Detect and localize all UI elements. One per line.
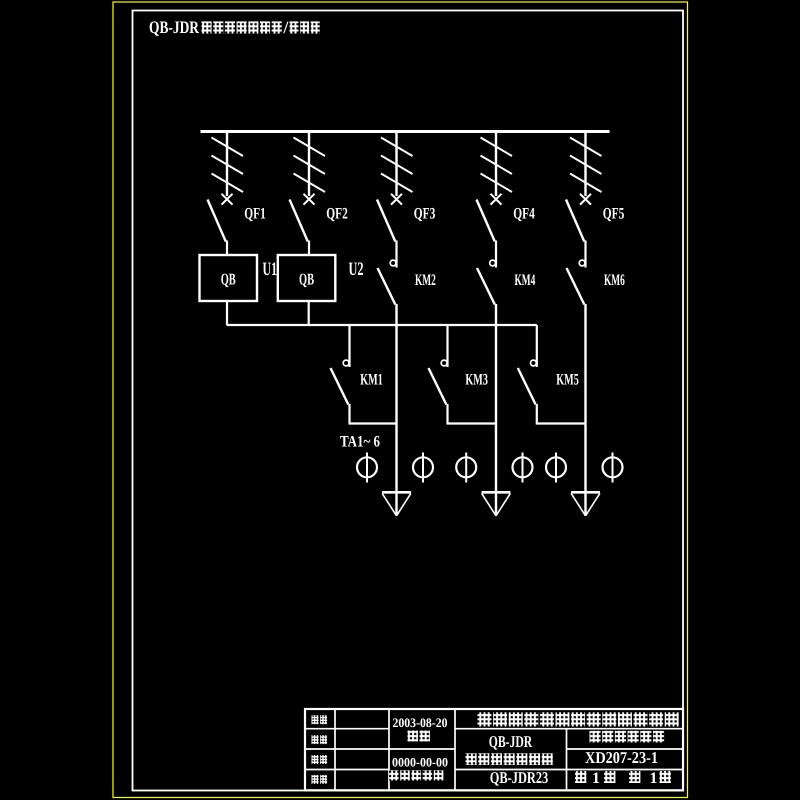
svg-text:QF4: QF4: [513, 205, 535, 222]
svg-text:KM3: KM3: [465, 372, 488, 389]
svg-text:U1: U1: [263, 259, 278, 280]
svg-text:0000-00-00: 0000-00-00: [392, 755, 448, 770]
svg-text:TA1~ 6: TA1~ 6: [340, 434, 380, 451]
svg-text:KM2: KM2: [415, 272, 436, 289]
svg-text:U2: U2: [349, 259, 364, 280]
svg-text:QF2: QF2: [326, 205, 348, 222]
svg-text:KM6: KM6: [604, 272, 625, 289]
svg-text:QB: QB: [299, 270, 314, 289]
svg-text:QB-JDR: QB-JDR: [149, 17, 199, 37]
svg-text:2003-08-20: 2003-08-20: [393, 715, 448, 730]
svg-text:QF3: QF3: [414, 205, 436, 222]
svg-text:QB: QB: [221, 270, 236, 289]
svg-text:QB-JDR23: QB-JDR23: [490, 768, 549, 787]
svg-text:QF1: QF1: [244, 205, 265, 222]
svg-text:1: 1: [592, 770, 600, 787]
svg-text:KM1: KM1: [360, 372, 383, 389]
svg-text:QF5: QF5: [603, 205, 625, 222]
svg-text:QB-JDR: QB-JDR: [489, 732, 533, 751]
svg-text:/: /: [283, 18, 289, 37]
svg-text:XD207-23-1: XD207-23-1: [585, 748, 658, 767]
svg-text:KM5: KM5: [556, 372, 579, 389]
svg-text:KM4: KM4: [515, 272, 536, 289]
svg-text:1: 1: [650, 770, 658, 787]
